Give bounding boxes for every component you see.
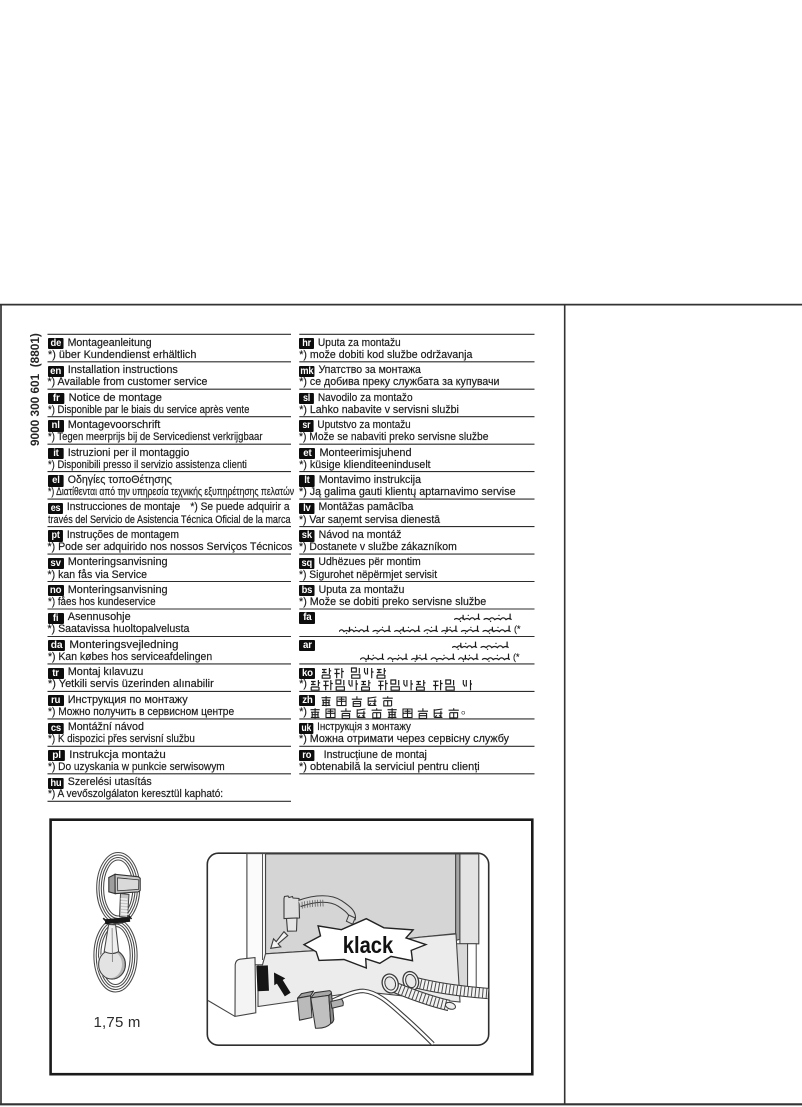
svg-text:klack: klack	[343, 932, 394, 958]
